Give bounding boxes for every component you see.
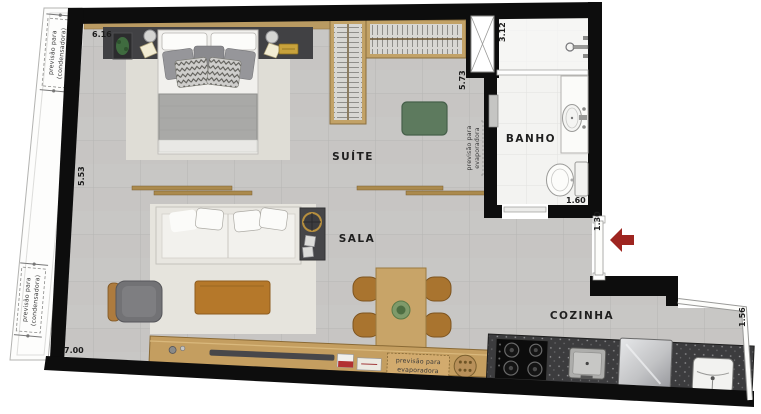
sliding-door-panel: [132, 186, 232, 190]
chevron-pillow: [175, 57, 210, 88]
armchair: [108, 281, 162, 322]
vent-grill: [454, 355, 477, 378]
room-label-banho: BANHO: [506, 133, 556, 145]
dim-entry: 1.30: [593, 211, 602, 231]
dim-bath: 1.60: [566, 196, 586, 205]
chevron-pillow: [206, 57, 241, 88]
decor-knob: [169, 346, 176, 353]
decor-box-red: [338, 361, 353, 368]
bed: [158, 30, 258, 154]
svg-text:previsão para: previsão para: [466, 126, 473, 171]
dining-chair: [424, 313, 451, 337]
dim-kitchen: 1.56: [738, 307, 747, 327]
bed-blanket: [159, 94, 257, 140]
floor-plan: previsão para (condensadora) previsão pa…: [0, 0, 761, 414]
sliding-door-panel: [406, 191, 492, 195]
cooktop: [494, 338, 548, 380]
evaporator-note-sideboard: previsão para evaporadora: [387, 353, 450, 377]
side-table: [300, 208, 325, 260]
svg-text:evaporadora: evaporadora: [474, 127, 481, 169]
nightstand-tray: [279, 44, 298, 54]
fridge: [618, 338, 672, 392]
dim-left: 5.53: [77, 166, 86, 186]
entrance-arrow-icon: [610, 228, 634, 252]
bathroom-bottom-door: [502, 204, 548, 219]
sliding-door-panel: [357, 186, 443, 190]
dim-top: 6.16: [92, 30, 112, 39]
dim-closet: 5.73: [458, 70, 467, 90]
shower-glass: [497, 70, 588, 75]
floor-plan-svg: previsão para (condensadora) previsão pa…: [0, 0, 761, 414]
bathroom-door: [489, 95, 498, 127]
pouf: [402, 102, 447, 135]
dining-chair: [424, 277, 451, 301]
shaft: [466, 10, 499, 78]
wall-step-corner: [666, 294, 678, 306]
decor-knob: [180, 346, 185, 351]
dim-bottom: 7.00: [64, 346, 84, 355]
kitchen-sink: [569, 348, 606, 380]
room-label-suite: SUÍTE: [332, 150, 374, 163]
toilet: [547, 162, 589, 196]
sofa: [156, 207, 301, 264]
room-label-sala: SALA: [339, 233, 376, 245]
vanity-sink: [561, 76, 588, 153]
wall-art-plant: [113, 33, 132, 59]
shower-area: [497, 18, 588, 70]
sliding-door-panel: [154, 191, 252, 195]
dim-shower: 3.12: [498, 22, 507, 42]
room-label-cozinha: COZINHA: [550, 310, 614, 322]
wall-right: [588, 2, 602, 218]
